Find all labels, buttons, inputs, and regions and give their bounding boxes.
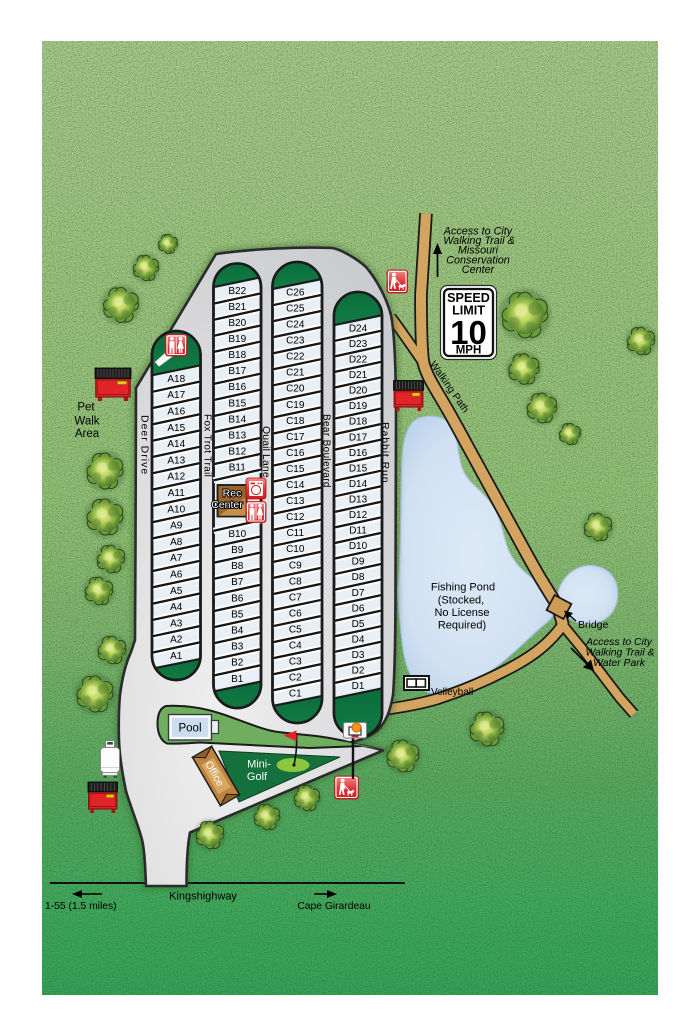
svg-text:B9: B9	[231, 545, 244, 556]
svg-text:C19: C19	[286, 400, 305, 411]
svg-text:C8: C8	[289, 576, 302, 587]
svg-text:A11: A11	[168, 488, 185, 499]
svg-text:A18: A18	[167, 374, 185, 385]
svg-text:MPH: MPH	[456, 345, 482, 357]
svg-text:Water Park: Water Park	[593, 658, 646, 669]
svg-text:C21: C21	[286, 368, 305, 379]
svg-text:C17: C17	[286, 432, 305, 443]
svg-text:Quail Lane: Quail Lane	[260, 426, 272, 478]
svg-text:D10: D10	[349, 541, 368, 552]
svg-text:D3: D3	[352, 650, 365, 661]
svg-text:Rec: Rec	[223, 488, 242, 500]
svg-text:C5: C5	[289, 624, 302, 635]
svg-text:Kingshighway: Kingshighway	[169, 891, 237, 903]
svg-text:B17: B17	[228, 366, 246, 377]
svg-text:B6: B6	[231, 593, 244, 604]
svg-text:D20: D20	[349, 386, 368, 397]
svg-text:D12: D12	[349, 510, 368, 521]
svg-text:B22: B22	[228, 286, 246, 297]
svg-text:B20: B20	[228, 318, 246, 329]
svg-text:D4: D4	[352, 634, 365, 645]
svg-text:A6: A6	[170, 570, 183, 581]
svg-text:A10: A10	[167, 504, 185, 515]
svg-text:C4: C4	[289, 641, 302, 652]
svg-text:Center: Center	[462, 264, 495, 276]
svg-text:B4: B4	[231, 626, 244, 637]
svg-text:1-55 (1.5 miles): 1-55 (1.5 miles)	[45, 901, 117, 912]
svg-text:B15: B15	[228, 398, 246, 409]
svg-text:B19: B19	[228, 334, 246, 345]
svg-text:C14: C14	[286, 480, 305, 491]
svg-text:B5: B5	[231, 609, 244, 620]
svg-text:B18: B18	[228, 350, 246, 361]
svg-text:D15: D15	[349, 463, 368, 474]
svg-text:D14: D14	[349, 479, 368, 490]
svg-text:D17: D17	[349, 432, 368, 443]
svg-text:Golf: Golf	[247, 771, 268, 783]
svg-text:A7: A7	[170, 553, 183, 564]
svg-text:D16: D16	[349, 448, 368, 459]
svg-text:C13: C13	[286, 496, 305, 507]
svg-text:Walking Trail &: Walking Trail &	[586, 648, 655, 659]
svg-text:D1: D1	[352, 681, 365, 692]
svg-text:Walk: Walk	[74, 416, 99, 428]
svg-text:D2: D2	[352, 666, 365, 677]
svg-text:Area: Area	[75, 428, 100, 440]
svg-text:Bear Boulevard: Bear Boulevard	[321, 414, 332, 488]
svg-text:A16: A16	[167, 407, 185, 418]
svg-text:D6: D6	[352, 603, 365, 614]
svg-text:D21: D21	[349, 370, 368, 381]
svg-text:Pet: Pet	[77, 402, 95, 414]
svg-text:D7: D7	[352, 588, 365, 599]
svg-text:B1: B1	[231, 674, 244, 685]
svg-text:D22: D22	[349, 355, 368, 366]
svg-text:D11: D11	[349, 526, 367, 537]
svg-text:B2: B2	[231, 658, 244, 669]
svg-text:C6: C6	[289, 608, 302, 619]
svg-text:A13: A13	[167, 455, 185, 466]
svg-text:D8: D8	[352, 572, 365, 583]
svg-text:Cape Girardeau: Cape Girardeau	[297, 901, 371, 912]
svg-text:Required): Required)	[438, 620, 486, 632]
svg-text:Center: Center	[211, 499, 243, 511]
svg-text:C23: C23	[286, 336, 305, 347]
svg-text:Volleyball: Volleyball	[431, 687, 473, 698]
svg-text:Deer Drive: Deer Drive	[138, 415, 150, 475]
svg-text:C15: C15	[286, 464, 305, 475]
svg-text:C9: C9	[289, 560, 302, 571]
svg-text:C18: C18	[286, 416, 305, 427]
svg-text:Access to City: Access to City	[585, 637, 653, 648]
svg-text:A9: A9	[170, 521, 183, 532]
svg-text:(Stocked,: (Stocked,	[438, 595, 484, 607]
svg-text:C2: C2	[289, 673, 302, 684]
svg-text:D23: D23	[349, 339, 368, 350]
svg-text:B7: B7	[231, 577, 244, 588]
svg-text:A17: A17	[167, 390, 185, 401]
svg-text:A1: A1	[170, 651, 183, 662]
svg-text:Pool: Pool	[178, 723, 201, 735]
svg-text:C7: C7	[289, 592, 302, 603]
svg-text:Bridge: Bridge	[578, 619, 609, 631]
svg-text:Fox Trot Trail: Fox Trot Trail	[202, 414, 213, 477]
svg-text:C12: C12	[286, 512, 305, 523]
svg-text:C22: C22	[286, 352, 305, 363]
svg-text:Fishing Pond: Fishing Pond	[431, 582, 495, 594]
svg-text:D19: D19	[349, 401, 368, 412]
svg-text:B12: B12	[228, 446, 246, 457]
svg-text:C26: C26	[286, 287, 305, 298]
svg-text:Rabbit Run: Rabbit Run	[379, 422, 391, 484]
svg-text:A15: A15	[167, 423, 185, 434]
svg-text:A8: A8	[170, 537, 183, 548]
svg-text:B3: B3	[231, 642, 244, 653]
svg-text:B13: B13	[228, 430, 246, 441]
svg-text:D5: D5	[352, 619, 365, 630]
svg-text:A2: A2	[170, 635, 183, 646]
svg-text:B14: B14	[228, 414, 246, 425]
svg-text:C24: C24	[286, 320, 305, 331]
svg-text:A12: A12	[167, 472, 185, 483]
svg-text:D13: D13	[349, 494, 368, 505]
svg-text:C11: C11	[286, 528, 304, 539]
svg-text:C3: C3	[289, 657, 302, 668]
svg-text:C25: C25	[286, 303, 305, 314]
svg-text:C10: C10	[286, 544, 305, 555]
svg-text:D9: D9	[352, 557, 365, 568]
svg-text:D18: D18	[349, 417, 368, 428]
svg-text:C20: C20	[286, 384, 305, 395]
svg-text:D24: D24	[349, 323, 368, 334]
svg-text:B10: B10	[228, 529, 246, 540]
svg-text:A5: A5	[170, 586, 183, 597]
svg-text:No License: No License	[434, 607, 489, 619]
svg-text:C16: C16	[286, 448, 305, 459]
svg-text:B16: B16	[228, 382, 246, 393]
svg-text:B21: B21	[228, 302, 246, 313]
svg-text:A14: A14	[167, 439, 185, 450]
svg-text:A3: A3	[170, 618, 183, 629]
svg-text:B8: B8	[231, 561, 244, 572]
svg-text:Mini-: Mini-	[247, 759, 271, 771]
svg-text:A4: A4	[170, 602, 183, 613]
svg-text:C1: C1	[289, 689, 302, 700]
